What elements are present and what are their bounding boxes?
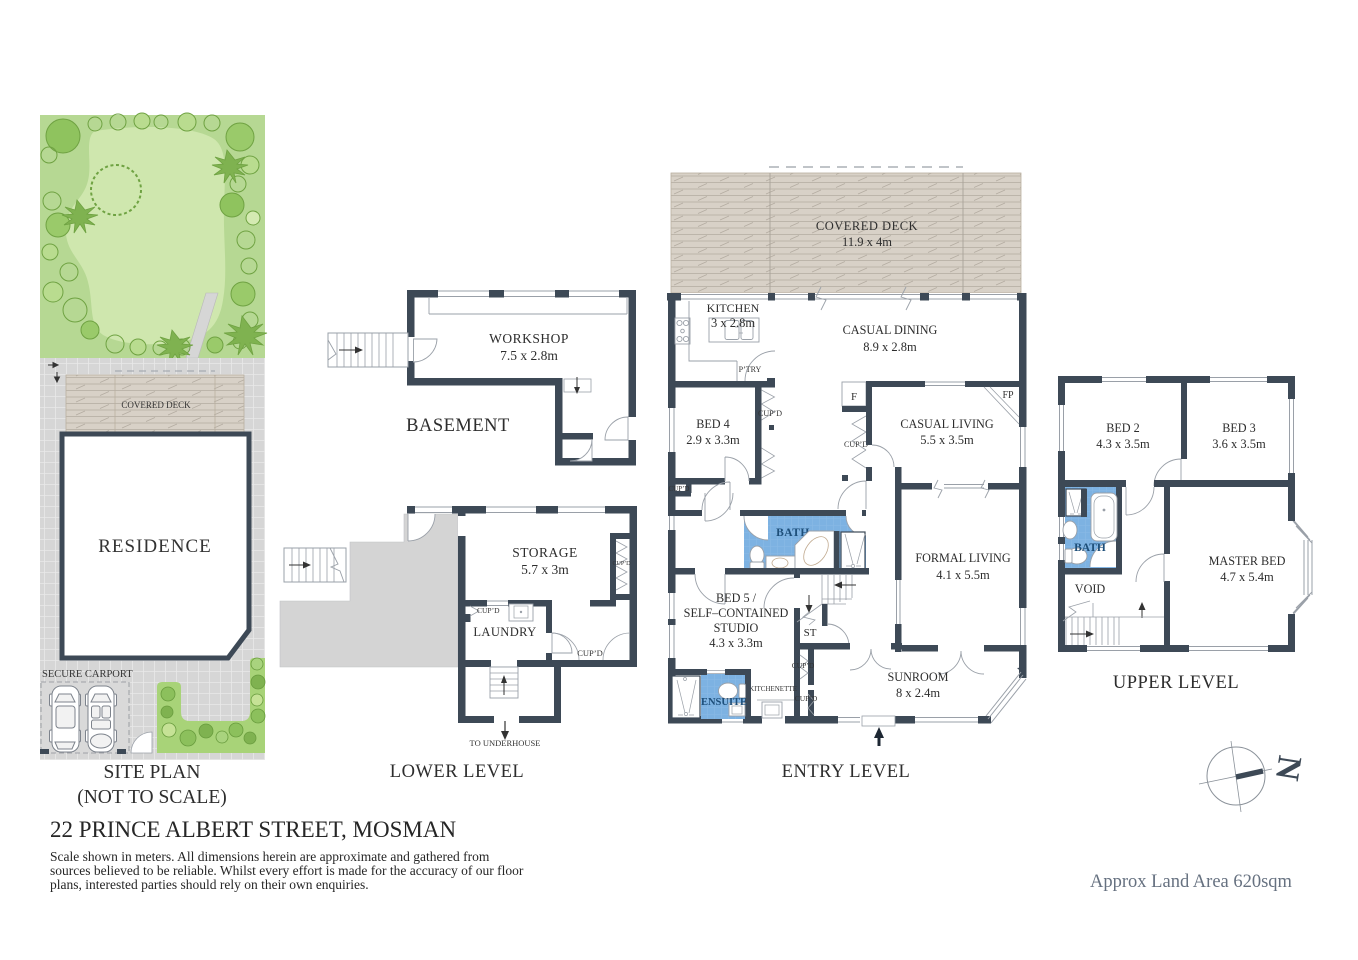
- svg-text:BED 2: BED 2: [1106, 421, 1140, 435]
- svg-text:LAUNDRY: LAUNDRY: [473, 625, 536, 639]
- svg-text:VOID: VOID: [1075, 582, 1106, 596]
- svg-text:WORKSHOP: WORKSHOP: [489, 331, 569, 346]
- svg-text:FORMAL LIVING: FORMAL LIVING: [915, 551, 1011, 565]
- svg-text:3.6 x 3.5m: 3.6 x 3.5m: [1212, 437, 1266, 451]
- svg-text:Scale shown in meters. All dim: Scale shown in meters. All dimensions he…: [50, 849, 490, 864]
- svg-text:CUP’D: CUP’D: [577, 648, 603, 658]
- svg-text:TO UNDERHOUSE: TO UNDERHOUSE: [470, 738, 541, 748]
- svg-text:BED 3: BED 3: [1222, 421, 1256, 435]
- svg-text:FP: FP: [1002, 390, 1014, 401]
- svg-text:F: F: [851, 391, 857, 403]
- svg-text:SITE PLAN: SITE PLAN: [104, 762, 201, 783]
- svg-text:COVERED DECK: COVERED DECK: [121, 400, 191, 410]
- svg-text:UPPER LEVEL: UPPER LEVEL: [1113, 673, 1239, 693]
- svg-text:ENSUITE: ENSUITE: [701, 697, 747, 708]
- svg-text:CUP’D: CUP’D: [668, 485, 689, 493]
- svg-text:BATH: BATH: [1074, 542, 1106, 554]
- svg-text:CUP’D: CUP’D: [477, 606, 500, 615]
- svg-text:3 x 2.8m: 3 x 2.8m: [711, 316, 755, 330]
- svg-text:CUP’D: CUP’D: [612, 561, 631, 567]
- svg-text:RESIDENCE: RESIDENCE: [98, 536, 212, 557]
- svg-text:BASEMENT: BASEMENT: [406, 416, 510, 436]
- svg-text:4.3 x 3.3m: 4.3 x 3.3m: [709, 636, 763, 650]
- svg-text:N: N: [1268, 753, 1308, 783]
- svg-text:8.9 x 2.8m: 8.9 x 2.8m: [863, 340, 917, 354]
- svg-text:STUDIO: STUDIO: [714, 621, 759, 635]
- svg-text:8 x 2.4m: 8 x 2.4m: [896, 686, 940, 700]
- svg-text:4.1 x 5.5m: 4.1 x 5.5m: [936, 568, 990, 582]
- svg-text:SUNROOM: SUNROOM: [888, 670, 949, 684]
- svg-text:2.9 x 3.3m: 2.9 x 3.3m: [686, 433, 740, 447]
- svg-text:LOWER LEVEL: LOWER LEVEL: [390, 762, 524, 782]
- svg-text:CUP’D: CUP’D: [758, 409, 782, 418]
- svg-text:ST: ST: [804, 627, 817, 639]
- svg-text:5.7 x 3m: 5.7 x 3m: [521, 562, 569, 577]
- svg-text:7.5 x 2.8m: 7.5 x 2.8m: [500, 348, 558, 363]
- svg-text:CUP’D: CUP’D: [844, 440, 868, 449]
- svg-text:CASUAL DINING: CASUAL DINING: [843, 323, 938, 337]
- svg-text:SECURE CARPORT: SECURE CARPORT: [42, 669, 133, 680]
- svg-text:BED 4: BED 4: [696, 417, 730, 431]
- svg-text:KITCHEN: KITCHEN: [707, 301, 760, 315]
- svg-text:CUP’D: CUP’D: [792, 661, 815, 670]
- svg-text:4.3 x 3.5m: 4.3 x 3.5m: [1096, 437, 1150, 451]
- svg-text:MASTER BED: MASTER BED: [1209, 554, 1286, 568]
- svg-text:SELF–CONTAINED: SELF–CONTAINED: [684, 606, 789, 620]
- svg-text:plans, interested parties shou: plans, interested parties should rely on…: [50, 877, 369, 892]
- svg-text:sources believed to be reliab: sources believed to be reliable. Whilst …: [50, 863, 524, 878]
- svg-text:CUP’D: CUP’D: [795, 694, 818, 703]
- svg-text:ENTRY LEVEL: ENTRY LEVEL: [782, 762, 911, 782]
- svg-text:22 PRINCE ALBERT STREET, MOSMA: 22 PRINCE ALBERT STREET, MOSMAN: [50, 817, 456, 842]
- svg-text:STORAGE: STORAGE: [512, 545, 578, 560]
- svg-text:(NOT TO SCALE): (NOT TO SCALE): [77, 787, 227, 808]
- svg-text:5.5 x 3.5m: 5.5 x 3.5m: [920, 433, 974, 447]
- svg-text:CASUAL LIVING: CASUAL LIVING: [900, 417, 994, 431]
- svg-text:COVERED DECK: COVERED DECK: [816, 219, 918, 233]
- svg-text:KITCHENETTE: KITCHENETTE: [749, 685, 797, 693]
- svg-text:P’TRY: P’TRY: [739, 365, 762, 374]
- svg-text:BED 5 /: BED 5 /: [716, 591, 757, 605]
- svg-text:4.7 x 5.4m: 4.7 x 5.4m: [1220, 570, 1274, 584]
- svg-text:11.9 x 4m: 11.9 x 4m: [842, 235, 892, 249]
- svg-text:Approx Land Area 620sqm: Approx Land Area 620sqm: [1090, 872, 1293, 892]
